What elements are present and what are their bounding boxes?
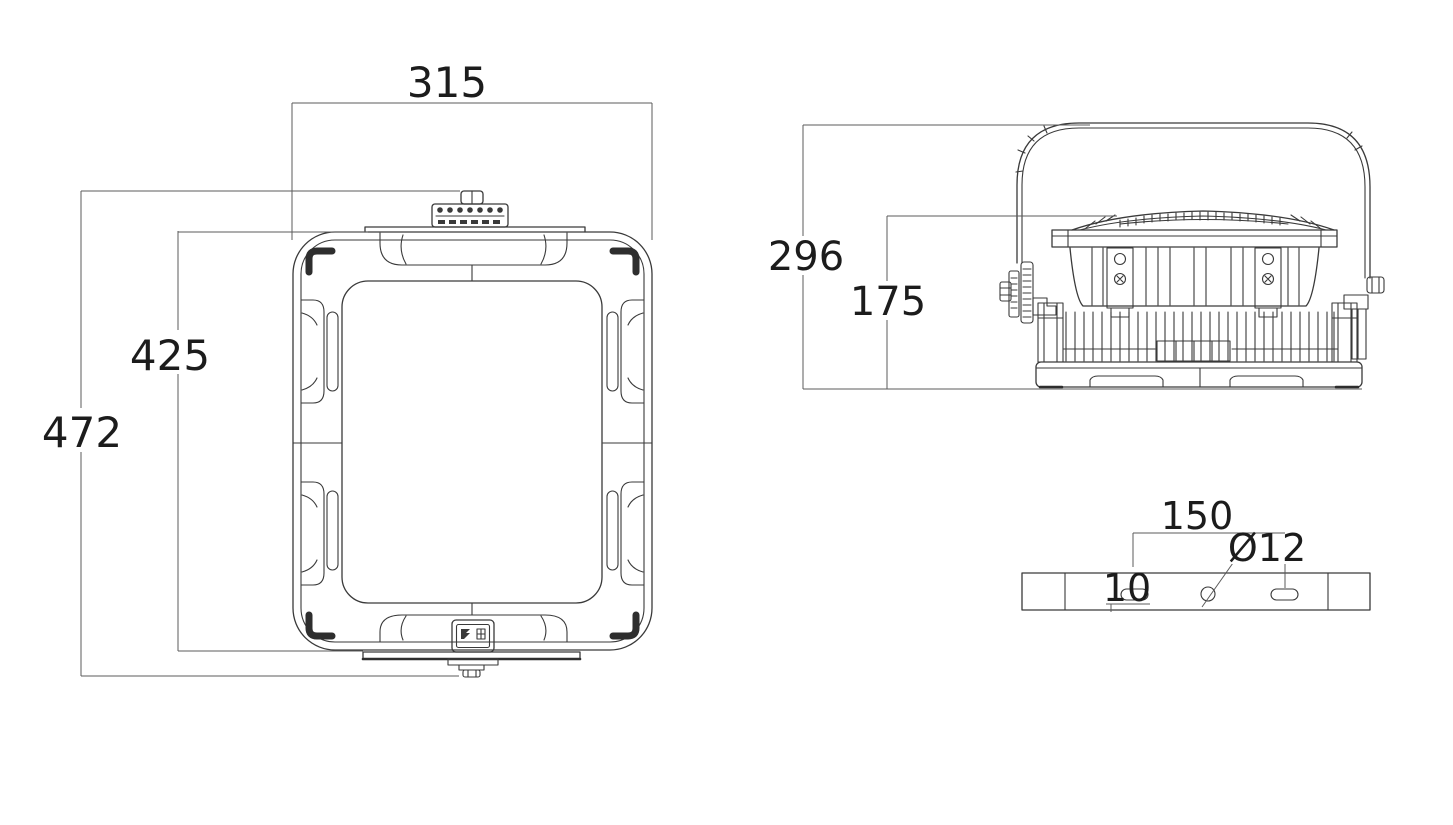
bracket-slot-right: [1271, 589, 1298, 600]
nameplate-glyph-left: [461, 629, 470, 639]
heat-sink-fins: [1063, 312, 1338, 361]
right-upper-recess: [621, 300, 644, 403]
left-lower-slot: [327, 491, 338, 570]
dim-bracket-hole-diameter: Ø12: [1228, 526, 1306, 570]
left-boss: [1107, 248, 1133, 308]
grill-dome: [1072, 211, 1334, 230]
left-screw-upper: [1115, 254, 1126, 265]
dim-bracket-hole-spacing: 150: [1161, 494, 1234, 538]
bottom-plate-assembly: [363, 652, 580, 677]
right-upper-slot: [607, 312, 618, 391]
pivot-bolt: [1367, 277, 1384, 293]
right-boss-foot: [1259, 308, 1277, 317]
dim-front-overall-height: 472: [42, 408, 122, 457]
floodlight-dimension-drawing: 315 425 472 296 175 150 Ø12 10: [0, 0, 1453, 825]
drawing-canvas: 315 425 472 296 175 150 Ø12 10: [0, 0, 1453, 825]
glass-panel: [342, 281, 602, 603]
dim-side-body-depth: 175: [850, 279, 926, 325]
right-screw-upper: [1263, 254, 1274, 265]
grill-mid-arc: [1120, 220, 1288, 225]
dim-bracket-slot-width: 10: [1103, 566, 1151, 610]
corner-bracket-marks: [309, 251, 636, 636]
bottom-knob-flange: [459, 665, 484, 670]
nameplate: [452, 620, 494, 652]
right-lower-slot: [607, 491, 618, 570]
nameplate-glyph-right: [477, 629, 485, 639]
bottom-recess-detail: [401, 603, 546, 640]
left-upper-recess: [301, 300, 324, 403]
top-plate: [365, 227, 585, 232]
left-upper-slot: [327, 312, 338, 391]
front-frame-inner: [301, 240, 644, 642]
pivot-bracket: [1344, 295, 1368, 309]
top-recess: [380, 233, 567, 265]
base-arch-right: [1230, 376, 1303, 387]
right-boss: [1255, 248, 1281, 308]
bottom-recess: [380, 615, 567, 642]
front-view: [81, 103, 652, 677]
handle-bend-hatch: [1016, 126, 1362, 172]
pivot-strip: [1352, 309, 1366, 359]
dim-front-width: 315: [407, 58, 487, 107]
left-stand: [1038, 303, 1063, 362]
left-pivot-assembly: [1000, 262, 1056, 323]
base-arch-left: [1090, 376, 1163, 387]
bracket-detail: [1022, 533, 1370, 612]
bezel: [1052, 230, 1337, 247]
bracket-bar: [1022, 573, 1370, 610]
left-lower-recess: [301, 482, 324, 585]
front-dimension-lines: [81, 103, 652, 676]
dome-outer-arc: [1072, 211, 1334, 230]
base-plate: [1036, 362, 1362, 387]
right-lower-recess: [621, 482, 644, 585]
bottom-knob: [463, 670, 480, 677]
dim-side-overall-depth: 296: [768, 234, 844, 280]
dimension-labels: 315 425 472 296 175 150 Ø12 10: [38, 58, 1306, 610]
right-stand: [1332, 303, 1357, 362]
upper-housing: [1070, 248, 1319, 317]
top-recess-detail: [401, 235, 546, 281]
side-view: [803, 123, 1384, 389]
front-frame-outer: [293, 232, 652, 650]
dim-front-mount-height: 425: [130, 331, 210, 380]
junction-box: [432, 191, 508, 227]
